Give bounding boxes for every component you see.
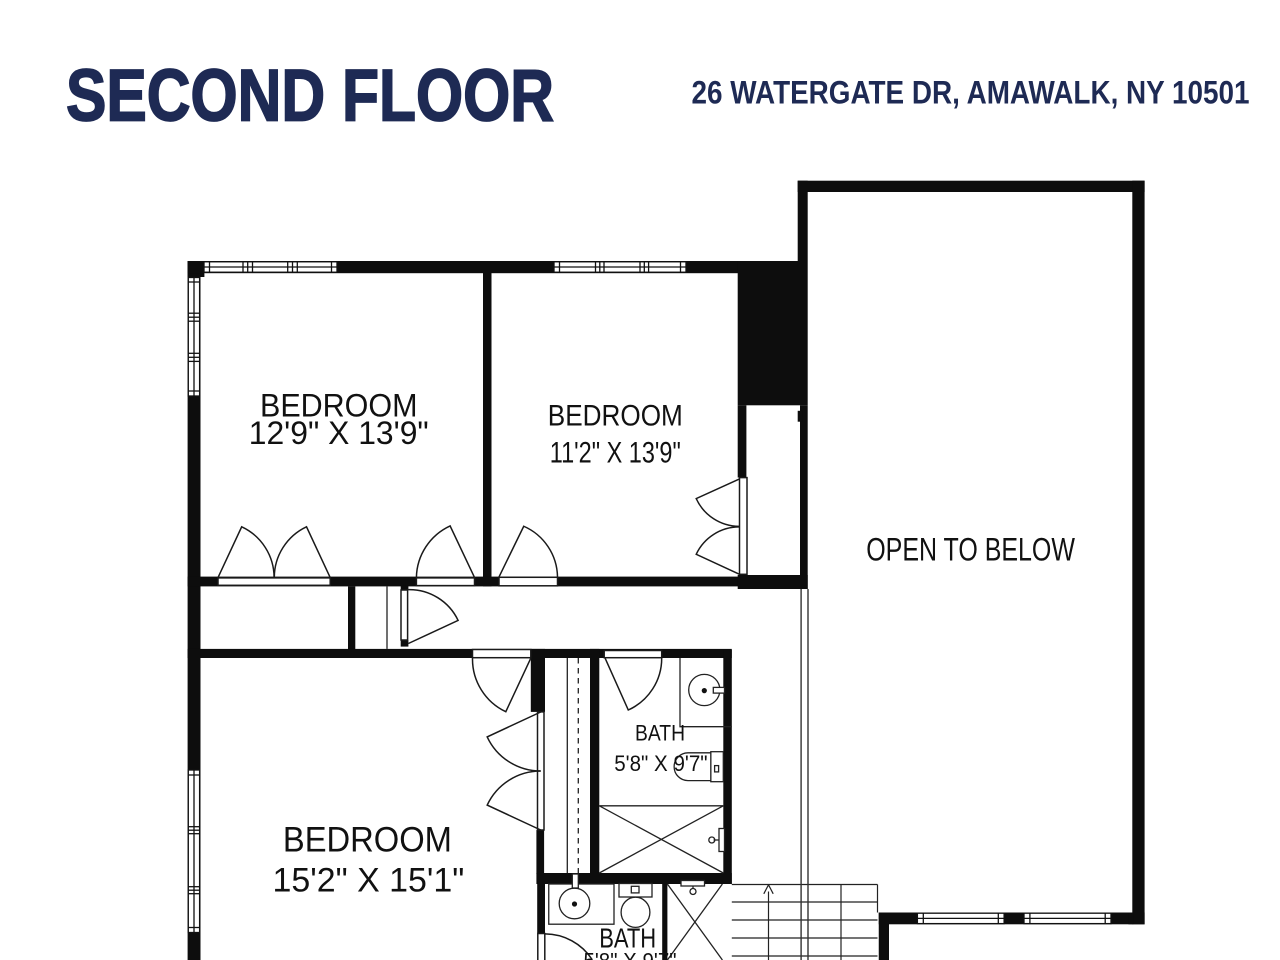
svg-text:12'9" X 13'9": 12'9" X 13'9"	[249, 415, 429, 451]
svg-text:BEDROOM: BEDROOM	[283, 821, 452, 860]
svg-text:OPEN TO BELOW: OPEN TO BELOW	[866, 530, 1075, 567]
svg-text:5'8" X 9'7": 5'8" X 9'7"	[614, 751, 707, 776]
svg-text:BATH: BATH	[635, 721, 685, 746]
svg-text:5'8" X 9'7": 5'8" X 9'7"	[584, 949, 677, 960]
svg-text:11'2" X 13'9": 11'2" X 13'9"	[550, 436, 681, 469]
svg-text:26 WATERGATE DR, AMAWALK, NY 1: 26 WATERGATE DR, AMAWALK, NY 10501	[692, 75, 1250, 111]
svg-text:SECOND FLOOR: SECOND FLOOR	[66, 54, 554, 137]
svg-text:BEDROOM: BEDROOM	[548, 400, 683, 433]
svg-text:15'2" X 15'1": 15'2" X 15'1"	[273, 861, 465, 899]
